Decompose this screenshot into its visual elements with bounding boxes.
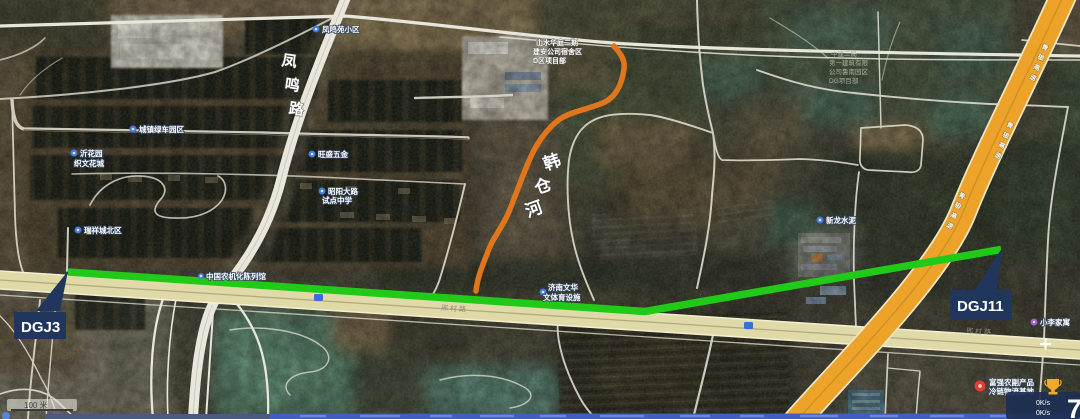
svg-text:瑞祥城北区: 瑞祥城北区 bbox=[84, 225, 122, 235]
svg-text:中国农机化陈列馆: 中国农机化陈列馆 bbox=[206, 271, 266, 281]
svg-text:昭阳大路: 昭阳大路 bbox=[328, 186, 358, 196]
svg-text:建安公司宿舍区: 建安公司宿舍区 bbox=[533, 47, 582, 56]
svg-text:新龙水泥: 新龙水泥 bbox=[826, 215, 856, 225]
svg-text:DGJ11: DGJ11 bbox=[957, 298, 1004, 315]
svg-text:凤鸣苑小区: 凤鸣苑小区 bbox=[322, 24, 360, 34]
svg-text:小李家寓: 小李家寓 bbox=[1040, 317, 1070, 327]
svg-text:鸣: 鸣 bbox=[284, 75, 301, 95]
svg-text:织文花城: 织文花城 bbox=[74, 158, 104, 168]
svg-text:100 米: 100 米 bbox=[24, 400, 48, 410]
svg-text:山水华庭二期: 山水华庭二期 bbox=[536, 38, 578, 47]
svg-text:城镇绿车园区: 城镇绿车园区 bbox=[139, 124, 184, 134]
svg-text:0K/s: 0K/s bbox=[1036, 410, 1051, 417]
svg-text:富强农副产品: 富强农副产品 bbox=[989, 377, 1034, 387]
svg-text:旺盛五金: 旺盛五金 bbox=[318, 149, 348, 159]
svg-text:7: 7 bbox=[1067, 394, 1080, 419]
svg-text:中建二局: 中建二局 bbox=[831, 49, 857, 58]
svg-text:DGJ3: DGJ3 bbox=[21, 319, 60, 336]
svg-text:DG项目部: DG项目部 bbox=[829, 76, 859, 85]
svg-text:凤: 凤 bbox=[281, 52, 298, 71]
svg-text:公司鲁南园区: 公司鲁南园区 bbox=[829, 67, 869, 76]
svg-text:0K/s: 0K/s bbox=[1036, 400, 1051, 407]
svg-text:济南文华: 济南文华 bbox=[548, 282, 578, 292]
svg-text:第一建筑有限: 第一建筑有限 bbox=[829, 58, 869, 67]
svg-text:沂花园: 沂花园 bbox=[80, 148, 103, 158]
svg-text:试点中学: 试点中学 bbox=[322, 195, 352, 205]
svg-text:D区项目部: D区项目部 bbox=[533, 56, 566, 65]
svg-text:文体育设施: 文体育设施 bbox=[543, 292, 581, 302]
